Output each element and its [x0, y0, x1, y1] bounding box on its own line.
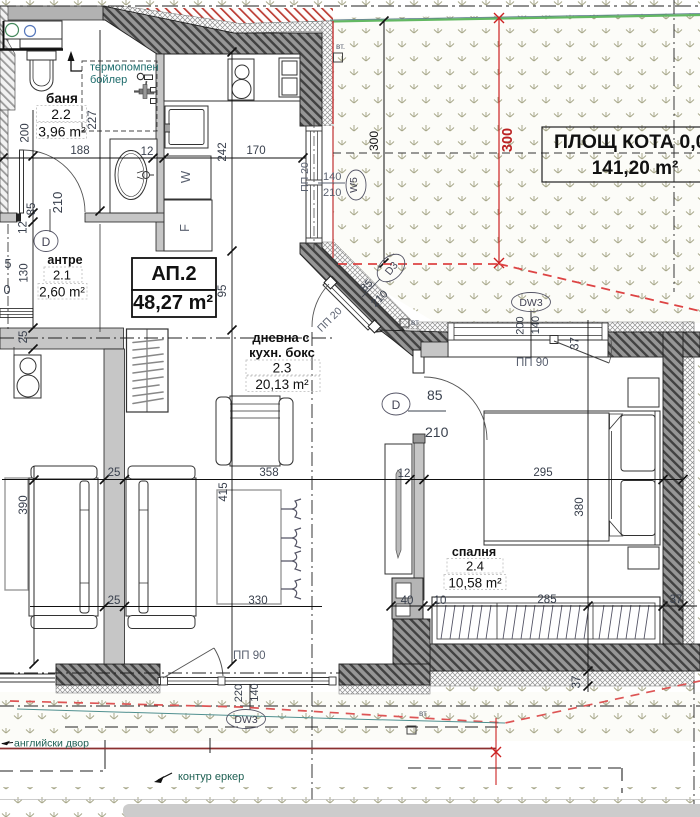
svg-text:ПП 90: ПП 90 — [516, 357, 549, 369]
svg-text:W: W — [178, 170, 193, 183]
svg-text:3,96 m²: 3,96 m² — [38, 124, 86, 140]
svg-text:2.4: 2.4 — [466, 559, 484, 574]
svg-text:300: 300 — [500, 128, 516, 152]
svg-text:200: 200 — [515, 316, 527, 334]
svg-text:220: 220 — [233, 684, 245, 702]
svg-text:210: 210 — [50, 192, 65, 214]
svg-text:кухн. бокс: кухн. бокс — [249, 345, 315, 360]
svg-text:285: 285 — [537, 594, 556, 606]
svg-text:контур еркер: контур еркер — [178, 771, 244, 783]
svg-text:188: 188 — [70, 145, 89, 157]
svg-text:спалня: спалня — [452, 545, 496, 559]
svg-text:25: 25 — [108, 595, 121, 607]
svg-text:вт: вт — [419, 709, 427, 718]
svg-text:вт: вт — [411, 318, 419, 327]
svg-text:25: 25 — [108, 467, 121, 479]
svg-text:140: 140 — [249, 683, 261, 701]
svg-text:227: 227 — [87, 110, 99, 129]
svg-text:D: D — [392, 398, 401, 412]
svg-text:140: 140 — [323, 171, 341, 183]
svg-text:130: 130 — [19, 263, 31, 282]
svg-text:10,58 m²: 10,58 m² — [448, 576, 502, 591]
svg-text:DW3: DW3 — [519, 297, 542, 309]
svg-text:40: 40 — [401, 595, 414, 607]
svg-text:2.2: 2.2 — [51, 106, 71, 122]
svg-text:АП.2: АП.2 — [151, 263, 196, 285]
svg-text:415: 415 — [218, 482, 230, 501]
svg-text:вт.: вт. — [336, 42, 345, 51]
svg-text:25: 25 — [18, 331, 30, 344]
svg-text:12: 12 — [398, 468, 411, 480]
svg-text:термопомпен: термопомпен — [90, 62, 159, 74]
svg-text:DW3: DW3 — [234, 714, 257, 726]
svg-text:300: 300 — [367, 131, 381, 151]
svg-text:37: 37 — [670, 594, 683, 606]
svg-text:141,20 m²: 141,20 m² — [592, 158, 679, 179]
svg-text:48,27 m²: 48,27 m² — [133, 292, 213, 314]
svg-text:дневна с: дневна с — [252, 330, 309, 345]
svg-text:390: 390 — [18, 495, 30, 514]
svg-text:20,13 m²: 20,13 m² — [255, 377, 309, 392]
svg-text:ПП 20: ПП 20 — [299, 162, 311, 192]
svg-text:бойлер: бойлер — [90, 74, 127, 86]
svg-text:ПЛОЩ КОТА 0,0: ПЛОЩ КОТА 0,0 — [554, 131, 700, 153]
svg-text:358: 358 — [259, 467, 278, 479]
svg-text:12: 12 — [18, 221, 30, 234]
svg-text:85: 85 — [427, 387, 443, 403]
svg-text:F: F — [177, 224, 192, 232]
svg-text:10: 10 — [434, 595, 447, 607]
svg-text:170: 170 — [246, 145, 265, 157]
svg-text:37: 37 — [571, 676, 583, 689]
svg-text:ПП 90: ПП 90 — [233, 650, 266, 662]
svg-text:242: 242 — [217, 142, 229, 161]
svg-text:12: 12 — [141, 146, 154, 158]
svg-text:5: 5 — [5, 257, 12, 271]
svg-text:2,60 m²: 2,60 m² — [39, 285, 85, 300]
svg-text:английски двор: английски двор — [14, 738, 89, 750]
svg-text:W5: W5 — [348, 177, 360, 193]
svg-text:210: 210 — [425, 424, 449, 440]
svg-text:антре: антре — [47, 253, 82, 267]
svg-text:2.1: 2.1 — [53, 268, 71, 283]
svg-text:380: 380 — [574, 497, 586, 516]
svg-text:200: 200 — [20, 123, 32, 142]
svg-text:295: 295 — [533, 467, 552, 479]
svg-text:95: 95 — [217, 285, 229, 298]
svg-text:2.3: 2.3 — [273, 361, 292, 376]
svg-text:0: 0 — [4, 283, 11, 297]
svg-text:D: D — [42, 235, 51, 249]
svg-text:85: 85 — [26, 203, 38, 216]
svg-text:37: 37 — [570, 337, 582, 350]
svg-text:210: 210 — [323, 187, 341, 199]
svg-text:330: 330 — [248, 595, 267, 607]
svg-text:140: 140 — [530, 316, 542, 334]
svg-text:баня: баня — [46, 91, 78, 106]
